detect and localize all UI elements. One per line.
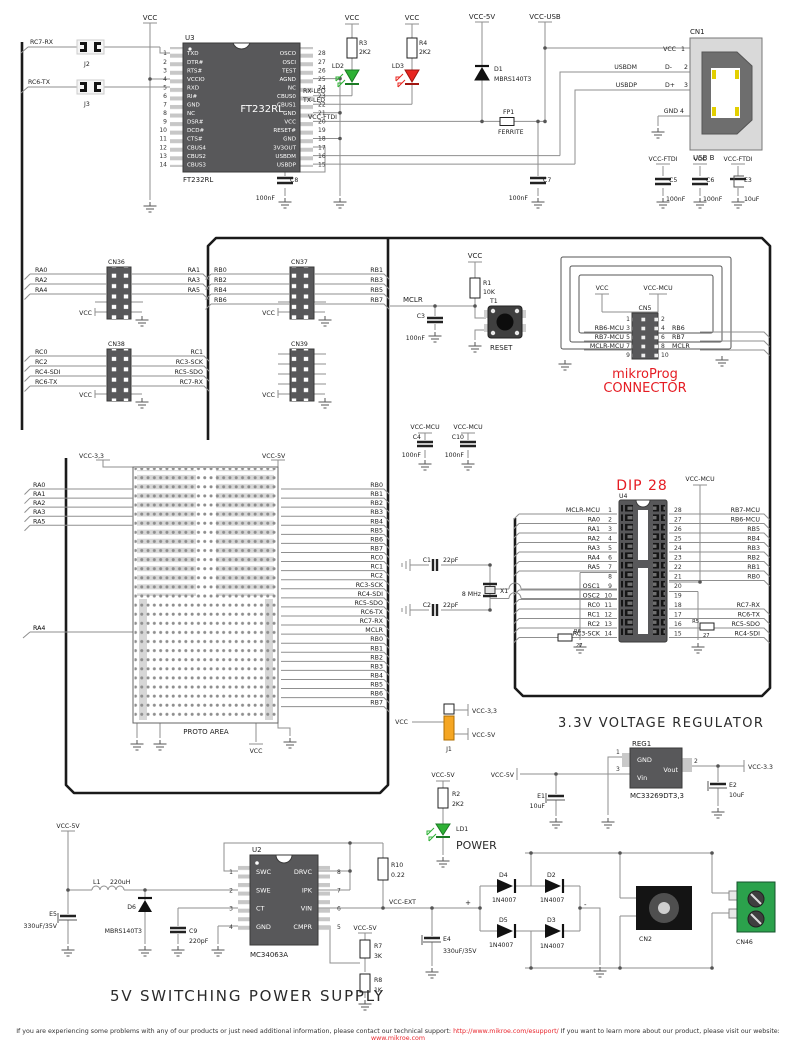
cn5-num-left-3: 7 xyxy=(626,343,630,350)
ft232-left-name-13: CBUS3 xyxy=(187,162,206,168)
d3-part: 1N4007 xyxy=(540,943,564,950)
vccmcu-label: VCC-MCU xyxy=(643,285,672,292)
cn38-left-2: RC4-SDI xyxy=(35,369,61,376)
ft232-left-num-1: 2 xyxy=(163,59,167,66)
ft232-right-num-13: 15 xyxy=(318,161,326,168)
fp1-ref: FP1 xyxy=(503,109,514,116)
dip-num-left-0: 1 xyxy=(608,507,612,514)
vcc5-label: VCC-5V xyxy=(56,823,80,830)
cn36-right-line-2 xyxy=(131,294,209,300)
net-rxled: RX-LED xyxy=(303,88,326,95)
c4-ref: C4 xyxy=(413,434,421,441)
r4-ref: R4 xyxy=(419,40,427,47)
dip-left-net-11: RC1 xyxy=(588,612,600,619)
ft232-right-name-7: GND xyxy=(283,111,296,117)
ft232-left-num-2: 3 xyxy=(163,67,167,74)
proto-right-net-3: RB3 xyxy=(370,509,383,516)
schematic-page: U3 FT232RL FT232RL TXDDTR#RTS#VCCIORXDRI… xyxy=(0,0,796,1051)
cn36-left-0: RA0 xyxy=(35,267,47,274)
vccftdi-label: VCC-FTDI xyxy=(649,156,678,163)
dip-num-left-2: 3 xyxy=(608,526,612,533)
proto-right-net-21: RB4 xyxy=(370,672,383,679)
power-label: POWER xyxy=(456,839,497,852)
cn5-right-2: MCLR xyxy=(672,343,690,350)
dip-num-right-3: 25 xyxy=(674,536,682,543)
ft232-left-name-4: RXD xyxy=(187,85,199,91)
dip-left-net-6: RA5 xyxy=(588,564,600,571)
dip-num-right-7: 21 xyxy=(674,574,682,581)
dip28-title: DIP 28 xyxy=(616,478,668,494)
cn38-right-3: RC7-RX xyxy=(180,379,204,386)
c5-ref: C5 xyxy=(669,177,677,184)
d6-ref: D6 xyxy=(127,904,136,911)
cn38-left: RC0RC2RC4-SDIRC6-TX xyxy=(25,349,108,392)
ft232-left-num-12: 13 xyxy=(159,153,167,160)
dip28-socket: DIP 28 VCC-MCU U4 1234567891011121314 28… xyxy=(514,476,770,653)
ft232-right-num-11: 17 xyxy=(318,144,326,151)
dip-num-left-5: 6 xyxy=(608,555,612,562)
e3-val: 10uF xyxy=(744,196,760,203)
u3-ref: U3 xyxy=(185,34,195,42)
dip-num-right-13: 15 xyxy=(674,631,682,638)
ft232-left-name-12: CBUS2 xyxy=(187,154,206,160)
dip-right-net-5: RB2 xyxy=(747,555,760,562)
e4-ref: E4 xyxy=(443,936,451,943)
r1-ref: R1 xyxy=(483,280,491,287)
bridge-plus: + xyxy=(465,899,471,907)
cn36-ref: CN36 xyxy=(108,259,125,266)
proto-right-net-18: RB1 xyxy=(370,645,383,652)
t1-ref: T1 xyxy=(489,298,498,305)
dip-num-left-10: 11 xyxy=(604,602,612,609)
dip-left-net-2: RA1 xyxy=(588,526,600,533)
dip-right-net-line-13 xyxy=(669,638,770,644)
d5-part: 1N4007 xyxy=(489,942,513,949)
ft232-left-num: 1234567891011121314 xyxy=(159,50,167,168)
ft232-left-name-2: RTS# xyxy=(187,68,202,74)
vcc33-option: VCC-3,3 xyxy=(472,708,497,715)
ft232-left-num-0: 1 xyxy=(163,50,167,57)
ft232-left-name-3: VCCIO xyxy=(187,77,205,83)
ld3-ref: LD3 xyxy=(392,63,404,70)
dip-left-net-line-11 xyxy=(514,619,618,625)
ft232-right-name-9: RESET# xyxy=(273,128,296,134)
proto-label: PROTO AREA xyxy=(183,728,229,736)
cn37-ref: CN37 xyxy=(291,259,308,266)
proto-left-net-2: RA2 xyxy=(33,500,45,507)
dip-num-left-7: 8 xyxy=(608,574,612,581)
net-usbdm: USBDM xyxy=(614,64,637,71)
usb-pad xyxy=(712,107,716,116)
footer-note: If you are experiencing some problems wi… xyxy=(0,1028,796,1042)
ft232-left-name-10: CTS# xyxy=(187,137,203,143)
ft232-right-num-1: 27 xyxy=(318,59,326,66)
proto-right-net-24: RB7 xyxy=(370,700,383,707)
dip-left-net-line-2 xyxy=(514,533,618,539)
vcc5-label: VCC-5V xyxy=(491,772,515,779)
mikroprog-title-1: mikroProg xyxy=(612,367,678,382)
vccmcu-label: VCC-MCU xyxy=(685,476,714,483)
dip-num-right-4: 24 xyxy=(674,545,682,552)
ft232-right-name-13: USBDP xyxy=(277,162,297,168)
c10-ref: C10 xyxy=(452,434,464,441)
cn37-right: RB1RB3RB5RB7 xyxy=(314,267,390,310)
c2-val: 22pF xyxy=(443,602,459,609)
ft232-left-num-7: 8 xyxy=(163,110,167,117)
top-wires xyxy=(21,22,745,200)
cn37-header[interactable] xyxy=(290,267,314,319)
vcc-label: VCC xyxy=(250,748,263,755)
proto-left-net-line-4 xyxy=(25,525,134,531)
reg-pin-vout: Vout xyxy=(663,766,678,774)
dip-right-net-1: RB6-MCU xyxy=(731,517,761,524)
dip-num-left-1: 2 xyxy=(608,517,612,524)
schematic-canvas: U3 FT232RL FT232RL TXDDTR#RTS#VCCIORXDRI… xyxy=(0,0,796,1051)
dip-left-net-line-8 xyxy=(514,590,618,596)
cn38-header[interactable] xyxy=(107,349,131,401)
proto-right-net-17: RB0 xyxy=(370,636,383,643)
cn38-left-1: RC2 xyxy=(35,359,47,366)
cn39-header[interactable] xyxy=(290,349,314,401)
dip-num-right-9: 19 xyxy=(674,593,682,600)
c7-ref: C7 xyxy=(543,177,551,184)
net-txled: TX-LED xyxy=(302,97,325,104)
net-vccftdi: VCC-FTDI xyxy=(308,114,337,121)
ft232-left-name-1: DTR# xyxy=(187,60,204,66)
ft232-left-num-5: 6 xyxy=(163,93,167,100)
dip-right-net-line-7 xyxy=(669,581,770,587)
u2-right-num-1: 7 xyxy=(337,887,341,894)
dip-left-net-line-1 xyxy=(514,524,618,530)
dip-left-net-line-10 xyxy=(514,609,618,615)
ft232-right-num: 2827262524232221201918171615 xyxy=(318,50,326,168)
d4-part: 1N4007 xyxy=(492,897,516,904)
cn1-n3: 3 xyxy=(684,82,688,89)
e1-ref: E1 xyxy=(537,793,545,800)
l1-ref: L1 xyxy=(93,879,100,886)
reg-pin-gnd: GND xyxy=(637,756,652,764)
cn1-p1: VCC xyxy=(663,46,676,53)
proto-right-net-1: RB1 xyxy=(370,491,383,498)
cn5-ref: CN5 xyxy=(639,305,652,312)
vccusb-label: VCC-USB xyxy=(529,13,561,21)
proto-right-net-10: RC2 xyxy=(371,573,383,580)
dip-num-right-0: 28 xyxy=(674,507,682,514)
r1-val: 10K xyxy=(483,289,496,296)
footer-support-url[interactable]: http://www.mikroe.com/esupport/ xyxy=(453,1028,559,1035)
vcc5-option: VCC-5V xyxy=(472,732,496,739)
cn38-ref: CN38 xyxy=(108,341,125,348)
c6-ref: C6 xyxy=(706,177,714,184)
cn38-right-2: RC5-SDO xyxy=(174,369,203,376)
u2-right-name-2: VIN xyxy=(301,905,312,913)
ft232-left-name-11: CBUS4 xyxy=(187,145,206,151)
u2-part: MC34063A xyxy=(250,951,288,959)
cn37-right-3: RB7 xyxy=(370,297,383,304)
dc-barrel-jack[interactable] xyxy=(636,886,692,930)
cn5-num-right-2: 6 xyxy=(661,334,665,341)
u2-right-name-0: DRVC xyxy=(294,868,313,876)
proto-right-net-5: RB5 xyxy=(370,527,383,534)
cn36-left-2: RA4 xyxy=(35,287,47,294)
vcc33-label: VCC-3.3 xyxy=(748,764,773,771)
cn1-n1: 1 xyxy=(681,46,685,53)
mikroprog-title-2: CONNECTOR xyxy=(603,381,686,396)
ft232-left-num-8: 9 xyxy=(163,119,167,126)
dip-num-right-8: 20 xyxy=(674,583,682,590)
ft232-right-num-2: 26 xyxy=(318,67,326,74)
cn5-num-left-1: 3 xyxy=(626,325,630,332)
ft232-right-name-5: CBUS0 xyxy=(277,94,296,100)
ft232-left-num-13: 14 xyxy=(159,161,167,168)
c4-val: 100nF xyxy=(402,452,422,459)
r6-ref: R6 xyxy=(574,629,581,635)
vcc-label: VCC xyxy=(468,252,483,260)
vcc5-label: VCC-5V xyxy=(431,772,455,779)
net-usbdp: USBDP xyxy=(616,82,637,89)
cn38-right-line-3 xyxy=(131,386,210,392)
dip-left-net-12: RC2 xyxy=(588,621,600,628)
mikroprog-connector: VCC VCC-MCU CN5 13579 246810 RB6-MCURB7-… xyxy=(559,257,770,396)
ft232-left-num-11: 12 xyxy=(159,144,167,151)
u2-right-num: 8765 xyxy=(337,869,341,931)
dip-left-net-4: RA3 xyxy=(588,545,600,552)
cn5-num-right-0: 2 xyxy=(661,316,665,323)
r5-val: 27 xyxy=(703,633,710,639)
vcc-label: VCC xyxy=(79,392,92,399)
d2-ref: D2 xyxy=(547,872,556,879)
d3-ref: D3 xyxy=(547,917,556,924)
footer-website-url[interactable]: www.mikroe.com xyxy=(371,1035,425,1042)
vcc-label: VCC xyxy=(596,285,609,292)
vcc-label: VCC xyxy=(143,14,158,22)
e3-ref: E3 xyxy=(744,177,752,184)
reg1-ref: REG1 xyxy=(632,740,651,748)
footer-text-1: If you are experiencing some problems wi… xyxy=(16,1028,453,1035)
usb-pad xyxy=(712,70,716,79)
dip-num-left-6: 7 xyxy=(608,564,612,571)
u2-left-num: 1234 xyxy=(229,869,233,931)
cn5-left: RB6-MCURB7-MCUMCLR-MCU xyxy=(584,325,632,350)
cn38-right: RC1RC3-SCKRC5-SDORC7-RX xyxy=(131,349,210,392)
cn5-left-0: RB6-MCU xyxy=(595,325,625,332)
cn37-right-1: RB3 xyxy=(370,277,383,284)
cn38-right-1: RC3-SCK xyxy=(176,359,204,366)
cn5-num-left-0: 1 xyxy=(626,316,630,323)
reg-num-1: 1 xyxy=(616,749,620,756)
cn37-left-1: RB2 xyxy=(214,277,227,284)
cn39-ref: CN39 xyxy=(291,341,308,348)
cn1-ref: CN1 xyxy=(690,28,705,36)
r6-val: 27 xyxy=(576,643,583,649)
dip-num-left-3: 4 xyxy=(608,536,612,543)
ft232-right-pins xyxy=(300,47,313,167)
proto-ra4: RA4 xyxy=(33,625,45,632)
cn36-left: RA0RA2RA4 xyxy=(25,267,108,300)
r8-ref: R8 xyxy=(374,977,382,984)
ft232-right-num-12: 16 xyxy=(318,153,326,160)
d2-part: 1N4007 xyxy=(540,897,564,904)
proto-right-net-0: RB0 xyxy=(370,482,383,489)
vcc-label: VCC xyxy=(262,310,275,317)
u2-right-name-3: CMPR xyxy=(293,923,312,931)
cn1-p2: D- xyxy=(665,64,672,71)
c3-val: 100nF xyxy=(406,335,426,342)
cn5-right-1: RB7 xyxy=(672,334,685,341)
vcc-label: VCC xyxy=(79,310,92,317)
cn38-right-0: RC1 xyxy=(191,349,203,356)
vccmcu-label: VCC-MCU xyxy=(453,424,482,431)
smps-section: U2 MC34063A SWCSWECTGND DRVCIPKVINCMPR 1… xyxy=(24,823,775,1010)
j1-power-select: VCC VCC-3,3 VCC-5V J1 xyxy=(395,704,497,753)
usb-pad xyxy=(735,107,739,116)
cn37-left-0: RB0 xyxy=(214,267,227,274)
u2-left-num-2: 3 xyxy=(229,906,233,913)
vcc5-label: VCC-5V xyxy=(353,925,377,932)
usb-b-connector[interactable] xyxy=(690,38,762,150)
proto-right-net-8: RC0 xyxy=(371,555,383,562)
ft232-left-name-7: NC xyxy=(187,111,195,117)
screw-terminal[interactable] xyxy=(729,882,775,932)
cn46-ref: CN46 xyxy=(736,939,753,946)
dip-right-net-2: RB5 xyxy=(747,526,760,533)
cn5-num-right-4: 10 xyxy=(661,352,669,359)
c9-ref: C9 xyxy=(189,928,197,935)
dip-left-net-3: RA2 xyxy=(588,536,600,543)
dip-left-net-line-12 xyxy=(514,628,618,634)
reg-part: MC33269DT3,3 xyxy=(630,792,684,800)
r4-val: 2K2 xyxy=(419,49,431,56)
cn36-header[interactable] xyxy=(107,267,131,319)
cn5-right-0: RB6 xyxy=(672,325,685,332)
mcu-decoupling: VCC-MCU VCC-MCU C4 100nF C10 100nF xyxy=(402,424,483,470)
solder-jumper-j2[interactable] xyxy=(77,40,104,54)
ft232-left-num-10: 11 xyxy=(159,136,167,143)
reg-num-2: 2 xyxy=(694,758,698,765)
c8-ref: C8 xyxy=(290,177,298,184)
smps-title: 5V SWITCHING POWER SUPPLY xyxy=(110,987,385,1005)
ft232-left-num-9: 10 xyxy=(159,127,167,134)
c1-val: 22pF xyxy=(443,557,459,564)
proto-right-net-20: RB3 xyxy=(370,663,383,670)
u2-left-num-1: 2 xyxy=(229,887,233,894)
u3-part: FT232RL xyxy=(183,176,213,184)
dip-left-net-line-5 xyxy=(514,562,618,568)
cn5-num-left-2: 5 xyxy=(626,334,630,341)
reset-label: RESET xyxy=(490,344,513,352)
cn36-right-2: RA5 xyxy=(188,287,200,294)
solder-jumper-j3[interactable] xyxy=(77,80,104,94)
dip-left-net-line-0 xyxy=(514,514,618,520)
u2-right-num-3: 5 xyxy=(337,924,341,931)
j2-label: J2 xyxy=(83,61,90,68)
u2-left-name-2: CT xyxy=(256,905,265,913)
cn5-num-right-3: 8 xyxy=(661,343,665,350)
cn1-p4: GND xyxy=(664,108,678,115)
dip-left-net-line-3 xyxy=(514,543,618,549)
cn5-num-right: 246810 xyxy=(661,316,669,359)
reset-circuit: MCLR R1 10K VCC C3 100nF T1 RESET xyxy=(390,252,526,352)
cn37-left-2: RB4 xyxy=(214,287,227,294)
dip-right-net-3: RB4 xyxy=(747,536,760,543)
dip-right-net-0: RB7-MCU xyxy=(731,507,761,514)
u2-left-name-0: SWC xyxy=(256,868,272,876)
e2-ref: E2 xyxy=(729,782,737,789)
dip-left-net-10: RC0 xyxy=(588,602,600,609)
x1-ref: X1 xyxy=(500,588,508,595)
reset-button[interactable] xyxy=(484,306,526,338)
dip-num-left-12: 13 xyxy=(604,621,612,628)
cn37-right-2: RB5 xyxy=(370,287,383,294)
vcc-label: VCC xyxy=(345,14,360,22)
dip-right-net-4: RB3 xyxy=(747,545,760,552)
ft232-left-name-5: RI# xyxy=(187,94,198,100)
e5-val: 330uF/35V xyxy=(24,923,58,930)
vcc5-label: VCC-5V xyxy=(469,13,496,21)
cn5-header[interactable] xyxy=(632,313,658,359)
r5-ref: R5 xyxy=(692,619,699,625)
e5-ref: E5 xyxy=(49,911,57,918)
dip-left-net-line-6 xyxy=(514,571,618,577)
ft232-left-name-6: GND xyxy=(187,103,200,109)
reg-num-3: 3 xyxy=(616,766,620,773)
cn1-n2: 2 xyxy=(684,64,688,71)
ft232-left-name-8: DSR# xyxy=(187,120,204,126)
e1-val: 10uF xyxy=(530,803,546,810)
cn37-left-line-3 xyxy=(206,304,291,310)
r3-ref: R3 xyxy=(359,40,367,47)
vcc5-label: VCC-5V xyxy=(262,453,286,460)
voltage-regulator: 3.3V VOLTAGE REGULATOR REG1 GND Vin Vout… xyxy=(491,716,773,828)
cn36-right-1: RA3 xyxy=(188,277,200,284)
u2-left-num-3: 4 xyxy=(229,924,233,931)
cn5-num-left-4: 9 xyxy=(626,352,630,359)
vcc33-label: VCC-3,3 xyxy=(79,453,104,460)
ft232-right-name-0: OSCO xyxy=(280,51,297,57)
dip-num-right-12: 16 xyxy=(674,621,682,628)
footer-text-2: If you want to learn more about our prod… xyxy=(559,1028,780,1035)
j3-label: J3 xyxy=(83,101,90,108)
proto-right-net-2: RB2 xyxy=(370,500,383,507)
reg-pin-vin: Vin xyxy=(637,774,647,782)
j1-jumper[interactable] xyxy=(444,704,454,740)
usb-pad xyxy=(735,70,739,79)
vcc-label: VCC xyxy=(694,156,707,163)
ft232-right-num-3: 25 xyxy=(318,76,326,83)
cn1-p3: D+ xyxy=(665,82,675,89)
l1-val: 220uH xyxy=(110,879,131,886)
u2-left-name-3: GND xyxy=(256,923,271,931)
cn2-ref: CN2 xyxy=(639,936,652,943)
ft232-left-num-3: 4 xyxy=(163,76,167,83)
dip-num-right-6: 22 xyxy=(674,564,682,571)
e2-val: 10uF xyxy=(729,792,745,799)
net-mclr: MCLR xyxy=(403,296,423,304)
dip-num-right: 2827262524232221201918171615 xyxy=(674,507,682,638)
net-rc7rx: RC7-RX xyxy=(30,39,54,46)
r7-val: 3K xyxy=(374,953,383,960)
dip-left-net-1: RA0 xyxy=(588,517,600,524)
mc34063-chip: U2 MC34063A SWCSWECTGND DRVCIPKVINCMPR 1… xyxy=(229,846,341,959)
dip-left-net-5: RA4 xyxy=(588,555,600,562)
cn1-n4: 4 xyxy=(680,108,684,115)
proto-right-net-14: RC6-TX xyxy=(361,609,384,616)
ft232-right-num-10: 18 xyxy=(318,136,326,143)
proto-right-net-4: RB4 xyxy=(370,518,383,525)
dip-left-net-0: MCLR-MCU xyxy=(566,507,601,514)
u2-right-name-1: IPK xyxy=(302,886,313,894)
u2-left-num-0: 1 xyxy=(229,869,233,876)
